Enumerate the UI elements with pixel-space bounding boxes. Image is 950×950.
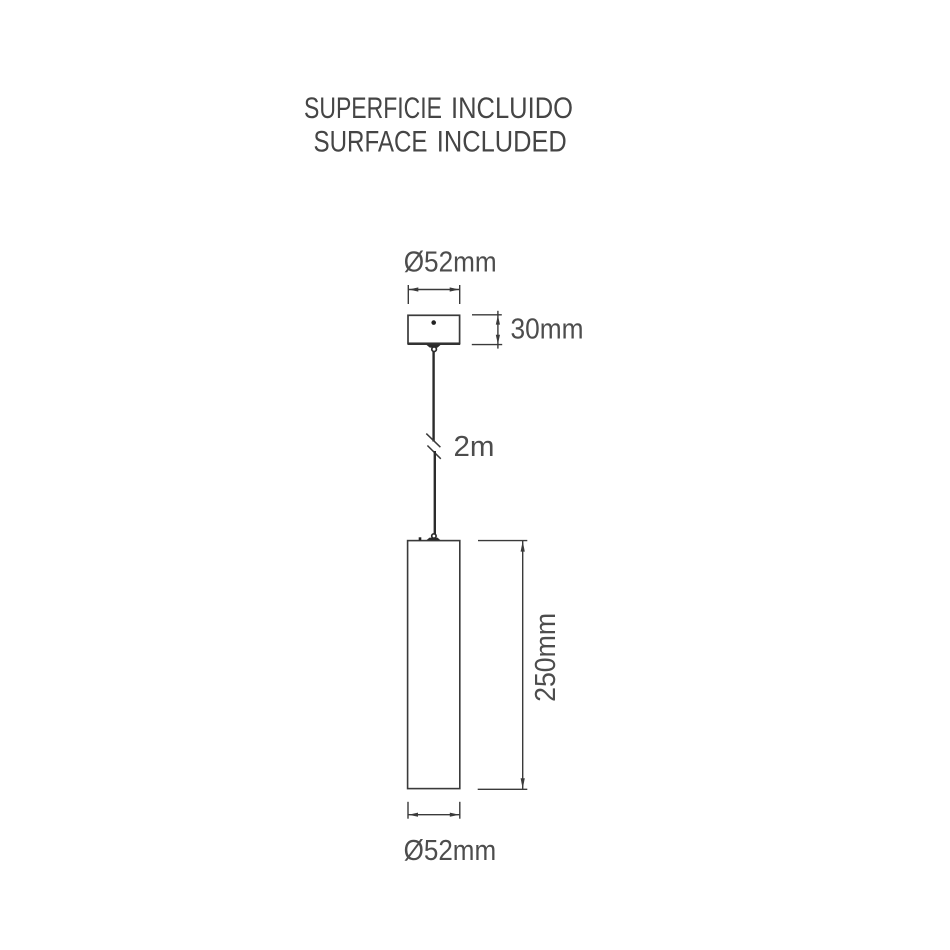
svg-text:INCLUIDO: INCLUIDO: [451, 92, 573, 125]
svg-text:Ø52mm: Ø52mm: [404, 835, 497, 867]
svg-text:INCLUDED: INCLUDED: [437, 125, 567, 158]
svg-text:2m: 2m: [454, 431, 495, 463]
svg-text:250mm: 250mm: [530, 613, 562, 702]
svg-text:Ø52mm: Ø52mm: [404, 247, 497, 279]
svg-text:SURFACE: SURFACE: [314, 125, 428, 158]
svg-text:30mm: 30mm: [511, 314, 584, 346]
svg-text:SUPERFICIE: SUPERFICIE: [304, 92, 442, 125]
